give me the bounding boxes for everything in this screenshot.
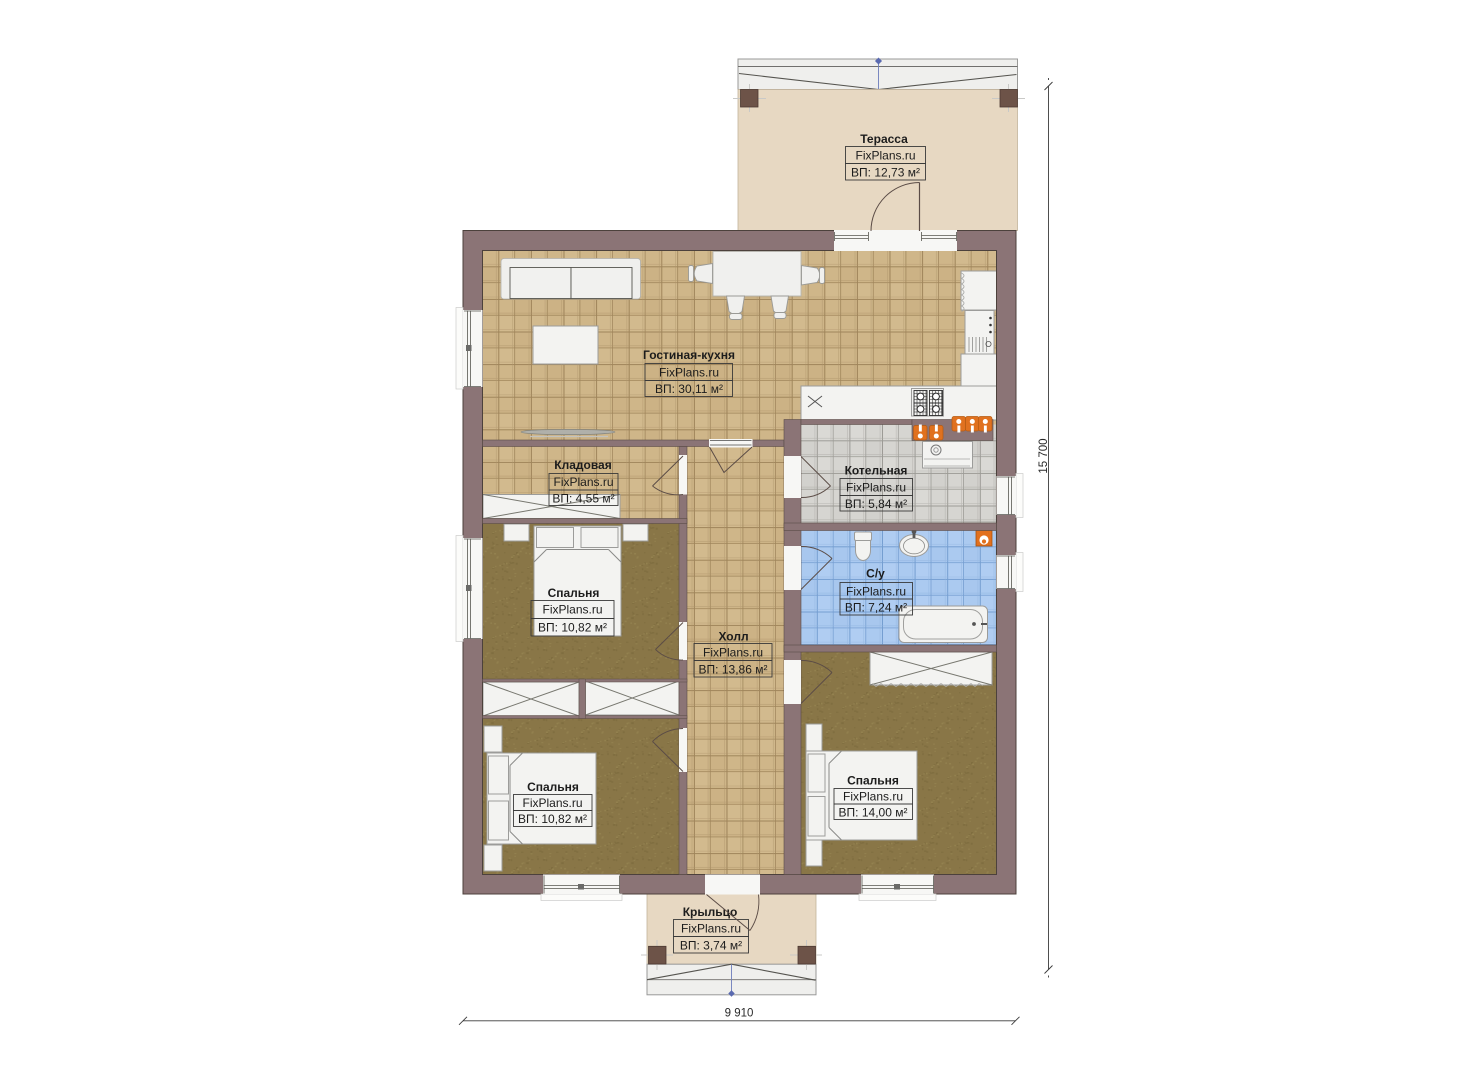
svg-text:ВП: 12,73 м²: ВП: 12,73 м²	[851, 166, 920, 180]
svg-text:Кладовая: Кладовая	[554, 458, 611, 472]
svg-text:15 700: 15 700	[1038, 438, 1050, 473]
svg-text:Терасса: Терасса	[860, 132, 908, 146]
svg-text:FixPlans.ru: FixPlans.ru	[855, 149, 915, 163]
svg-text:ВП: 5,84 м²: ВП: 5,84 м²	[845, 497, 907, 511]
svg-text:FixPlans.ru: FixPlans.ru	[846, 481, 906, 495]
svg-text:Спальня: Спальня	[548, 586, 600, 600]
svg-text:ВП: 10,82 м²: ВП: 10,82 м²	[538, 621, 607, 635]
svg-text:FixPlans.ru: FixPlans.ru	[553, 475, 613, 489]
svg-text:FixPlans.ru: FixPlans.ru	[843, 790, 903, 804]
svg-text:ВП: 13,86 м²: ВП: 13,86 м²	[699, 663, 768, 677]
svg-text:FixPlans.ru: FixPlans.ru	[846, 585, 906, 599]
svg-text:FixPlans.ru: FixPlans.ru	[703, 646, 763, 660]
svg-text:Спальня: Спальня	[847, 774, 899, 788]
svg-text:ВП: 4,55 м²: ВП: 4,55 м²	[552, 492, 614, 506]
svg-text:9 910: 9 910	[725, 1008, 754, 1020]
svg-text:Крыльцо: Крыльцо	[683, 905, 738, 919]
svg-text:FixPlans.ru: FixPlans.ru	[522, 796, 582, 810]
svg-text:ВП: 10,82 м²: ВП: 10,82 м²	[518, 812, 587, 826]
svg-text:ВП: 30,11 м²: ВП: 30,11 м²	[655, 382, 723, 396]
svg-text:Холл: Холл	[718, 630, 748, 644]
svg-text:Котельная: Котельная	[845, 464, 908, 478]
svg-text:ВП: 3,74 м²: ВП: 3,74 м²	[680, 939, 742, 953]
svg-text:Гостиная-кухня: Гостиная-кухня	[643, 348, 735, 362]
svg-text:ВП: 7,24 м²: ВП: 7,24 м²	[845, 601, 907, 615]
svg-text:ВП: 14,00 м²: ВП: 14,00 м²	[839, 806, 908, 820]
svg-text:Спальня: Спальня	[527, 780, 579, 794]
svg-text:FixPlans.ru: FixPlans.ru	[542, 603, 602, 617]
svg-text:С/у: С/у	[866, 567, 885, 581]
svg-text:FixPlans.ru: FixPlans.ru	[681, 922, 741, 936]
svg-text:FixPlans.ru: FixPlans.ru	[659, 366, 719, 380]
